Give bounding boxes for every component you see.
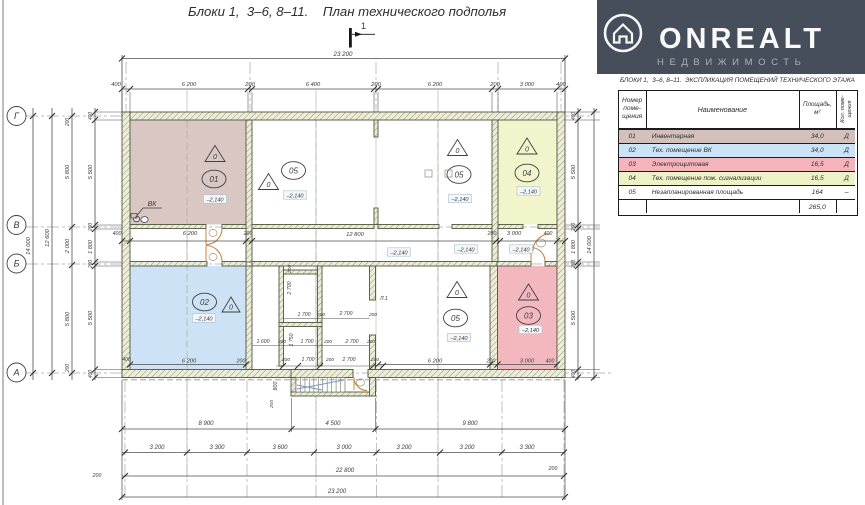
svg-text:12 800: 12 800 [346,232,365,238]
svg-text:1 750: 1 750 [289,333,295,346]
svg-text:0: 0 [267,182,271,189]
svg-text:200: 200 [65,118,71,128]
svg-text:0: 0 [456,148,460,155]
svg-text:Л.1: Л.1 [379,296,388,302]
svg-text:3 000: 3 000 [336,445,352,451]
svg-text:–2,140: –2,140 [521,328,540,334]
svg-text:5 500: 5 500 [88,310,94,325]
svg-text:14 000: 14 000 [587,235,593,254]
svg-text:–2,140: –2,140 [450,197,469,203]
svg-text:0: 0 [525,147,529,154]
svg-text:05: 05 [289,167,298,176]
svg-text:200: 200 [487,231,497,237]
svg-text:400: 400 [113,231,122,237]
svg-text:0: 0 [213,154,217,161]
svg-text:6 200: 6 200 [182,82,197,88]
svg-text:200: 200 [236,359,246,365]
svg-text:200: 200 [366,339,375,345]
svg-text:8 900: 8 900 [198,421,214,427]
svg-text:04: 04 [523,169,532,178]
svg-text:01: 01 [210,175,219,184]
svg-text:200: 200 [370,357,379,363]
svg-text:–2,140: –2,140 [519,189,538,195]
svg-text:200: 200 [88,223,94,233]
svg-text:200: 200 [92,473,102,479]
svg-text:–2,140: –2,140 [205,197,224,203]
svg-text:3 000: 3 000 [507,231,522,237]
svg-text:200: 200 [88,260,94,270]
svg-text:23 200: 23 200 [333,51,353,58]
svg-text:1 700: 1 700 [301,339,314,345]
svg-text:200: 200 [65,364,71,374]
svg-text:200: 200 [269,400,275,409]
svg-text:1: 1 [361,21,366,31]
svg-text:22 800: 22 800 [335,468,355,474]
svg-text:2 700: 2 700 [345,339,359,345]
svg-text:400: 400 [571,370,577,379]
svg-text:3 600: 3 600 [272,445,288,451]
svg-text:ВК: ВК [148,201,158,208]
svg-text:–2,140: –2,140 [456,247,475,253]
svg-text:0: 0 [229,305,233,312]
svg-text:6 200: 6 200 [183,231,198,237]
svg-text:200: 200 [368,312,377,318]
svg-text:23 200: 23 200 [327,489,347,495]
svg-text:6 200: 6 200 [428,82,443,88]
svg-text:В: В [13,220,19,230]
svg-text:1 800: 1 800 [571,239,577,254]
svg-text:3 000: 3 000 [520,82,535,88]
svg-text:1 700: 1 700 [298,312,311,318]
svg-text:14 000: 14 000 [26,236,32,255]
svg-text:1 800: 1 800 [88,239,94,254]
svg-text:400: 400 [546,359,555,365]
svg-text:5 800: 5 800 [65,164,71,179]
svg-text:400: 400 [122,357,131,363]
svg-text:200: 200 [489,82,500,88]
svg-text:5 500: 5 500 [88,164,94,179]
svg-text:6 200: 6 200 [428,359,443,365]
svg-text:200: 200 [277,339,286,345]
svg-text:2 700: 2 700 [287,281,293,295]
svg-text:3 200: 3 200 [459,445,475,451]
svg-text:200: 200 [316,312,325,318]
svg-text:2 700: 2 700 [339,311,353,317]
svg-text:2 000: 2 000 [65,238,71,254]
svg-text:5 500: 5 500 [571,164,577,179]
svg-text:2 700: 2 700 [342,357,356,363]
svg-text:200: 200 [370,82,381,88]
svg-text:400: 400 [556,82,566,88]
svg-text:–2,140: –2,140 [389,250,408,256]
svg-text:400: 400 [544,231,553,237]
svg-text:6 200: 6 200 [182,359,197,365]
svg-text:200: 200 [486,359,496,365]
svg-text:400: 400 [111,82,121,88]
svg-text:200: 200 [287,265,293,274]
svg-text:А: А [12,368,19,378]
svg-text:200: 200 [571,223,577,233]
svg-text:1 700: 1 700 [302,357,315,363]
svg-text:–2,140: –2,140 [194,316,213,322]
svg-text:1 600: 1 600 [257,339,270,345]
svg-text:–2,140: –2,140 [511,247,530,253]
svg-text:400: 400 [88,370,94,379]
svg-text:–2,140: –2,140 [285,193,304,199]
svg-text:03: 03 [524,312,533,321]
svg-text:200: 200 [571,260,577,270]
svg-text:200: 200 [323,339,332,345]
svg-text:5 500: 5 500 [571,310,577,325]
svg-text:02: 02 [200,298,209,307]
svg-text:3 200: 3 200 [149,445,165,451]
svg-text:05: 05 [451,314,460,323]
svg-text:3 000: 3 000 [520,359,535,365]
svg-text:400: 400 [571,112,577,121]
svg-text:200: 200 [243,231,253,237]
svg-text:200: 200 [244,82,255,88]
svg-text:3 300: 3 300 [519,445,535,451]
svg-text:9 800: 9 800 [462,421,478,427]
svg-text:6 400: 6 400 [306,82,321,88]
svg-text:–2,140: –2,140 [449,336,468,342]
svg-text:Б: Б [14,259,20,269]
svg-text:200: 200 [548,466,558,472]
svg-text:5 800: 5 800 [65,311,71,326]
svg-text:05: 05 [455,171,464,180]
svg-text:400: 400 [88,112,94,121]
svg-text:800: 800 [273,382,279,391]
svg-text:3 300: 3 300 [209,445,225,451]
svg-text:12 600: 12 600 [45,228,51,247]
svg-text:4 500: 4 500 [325,421,341,427]
svg-text:200: 200 [281,357,290,363]
svg-text:3 200: 3 200 [396,445,412,451]
svg-text:0: 0 [527,293,531,300]
svg-text:0: 0 [455,290,459,297]
svg-text:200: 200 [325,357,334,363]
